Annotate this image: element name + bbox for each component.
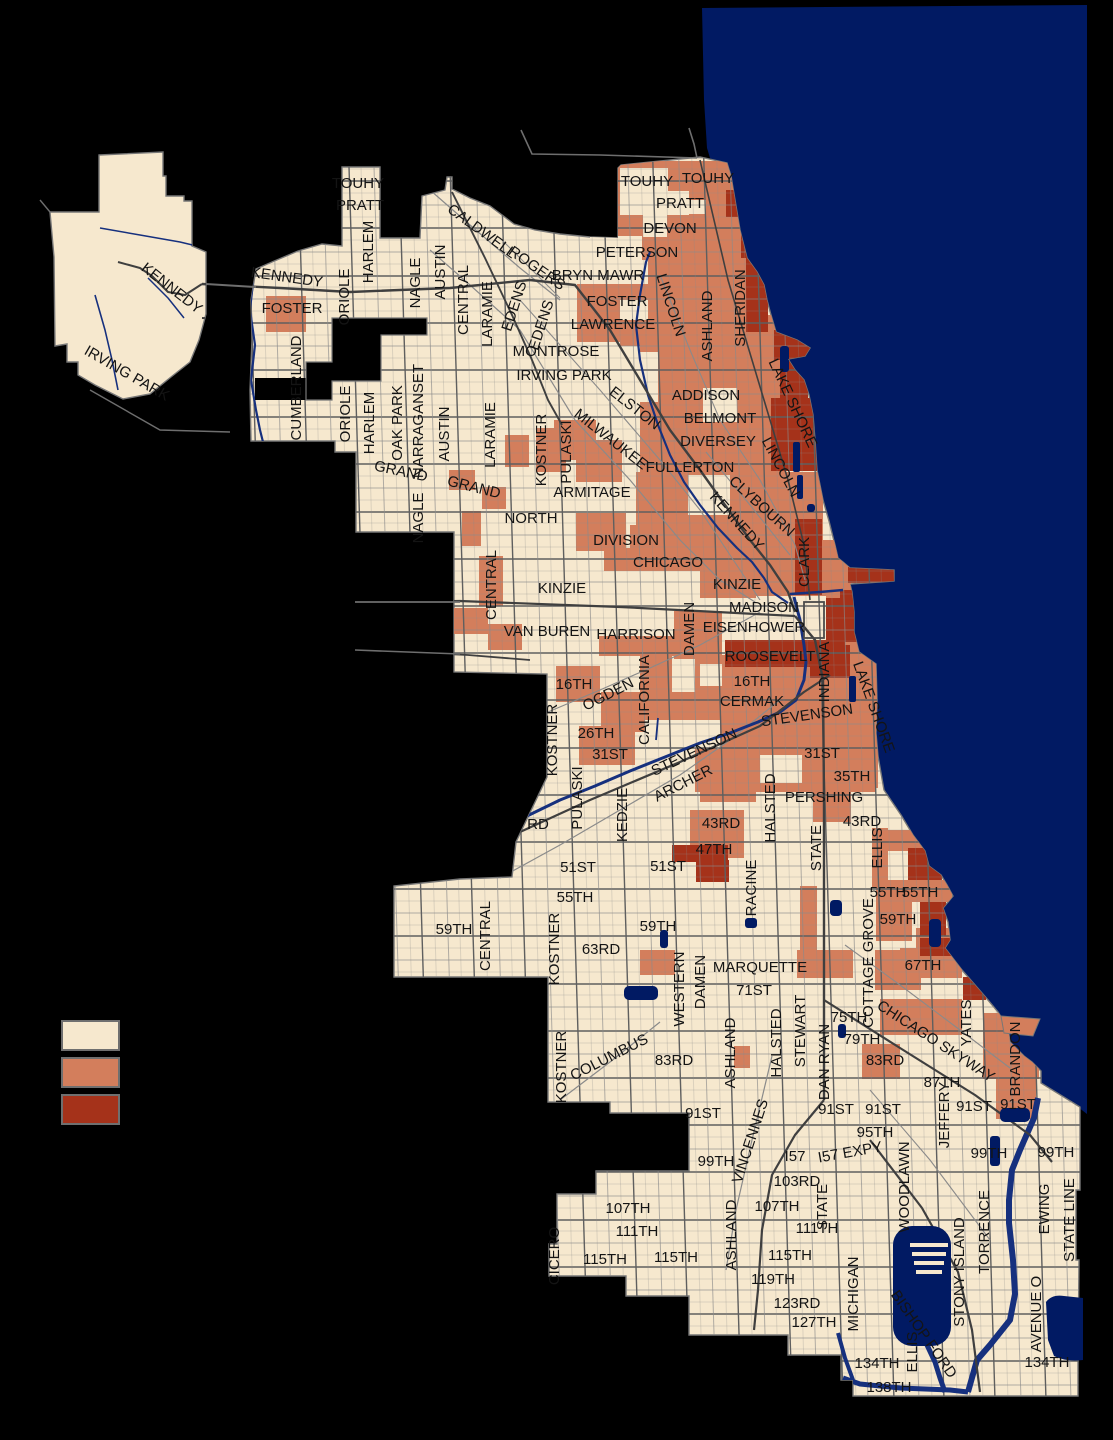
svg-text:134TH: 134TH bbox=[854, 1355, 899, 1372]
svg-text:WOODLAWN: WOODLAWN bbox=[896, 1141, 913, 1232]
svg-text:134TH: 134TH bbox=[1024, 1354, 1069, 1371]
svg-text:CENTRAL: CENTRAL bbox=[455, 265, 472, 335]
svg-text:NAGLE: NAGLE bbox=[410, 493, 427, 544]
svg-text:HARLEM: HARLEM bbox=[360, 221, 377, 284]
svg-text:115TH: 115TH bbox=[768, 1247, 812, 1264]
svg-text:31ST: 31ST bbox=[804, 745, 840, 762]
svg-text:ORIOLE: ORIOLE bbox=[337, 386, 354, 443]
svg-text:STATE LINE: STATE LINE bbox=[1061, 1178, 1078, 1262]
svg-text:59TH: 59TH bbox=[436, 921, 473, 938]
svg-text:ROOSEVELT: ROOSEVELT bbox=[725, 648, 816, 665]
svg-text:DIVERSEY: DIVERSEY bbox=[680, 433, 756, 450]
svg-text:HARLEM: HARLEM bbox=[361, 392, 378, 455]
svg-text:ASHLAND: ASHLAND bbox=[722, 1017, 739, 1088]
svg-text:51ST: 51ST bbox=[650, 858, 686, 875]
svg-text:PULASKI: PULASKI bbox=[558, 420, 575, 483]
svg-text:KOSTNER: KOSTNER bbox=[544, 704, 561, 777]
svg-text:WESTERN: WESTERN bbox=[671, 952, 688, 1027]
svg-text:TOUHY: TOUHY bbox=[332, 175, 384, 192]
svg-text:TOUHY: TOUHY bbox=[682, 170, 734, 187]
svg-text:115TH: 115TH bbox=[583, 1251, 627, 1268]
svg-text:LARAMIE: LARAMIE bbox=[479, 281, 496, 347]
svg-text:KINZIE: KINZIE bbox=[538, 580, 586, 597]
svg-text:111TH: 111TH bbox=[796, 1220, 839, 1237]
svg-text:67TH: 67TH bbox=[905, 957, 942, 974]
svg-text:DEVON: DEVON bbox=[643, 220, 696, 237]
svg-text:ASHLAND: ASHLAND bbox=[723, 1199, 740, 1270]
svg-text:HARRISON: HARRISON bbox=[596, 626, 675, 643]
svg-text:43RD: 43RD bbox=[702, 815, 741, 832]
svg-text:31ST: 31ST bbox=[592, 746, 628, 763]
svg-text:FOSTER: FOSTER bbox=[262, 300, 323, 317]
svg-text:ELLIS: ELLIS bbox=[869, 828, 886, 869]
svg-text:47TH: 47TH bbox=[696, 841, 733, 858]
svg-text:NORTH: NORTH bbox=[504, 510, 557, 527]
svg-text:STATE: STATE bbox=[808, 825, 825, 871]
svg-text:95TH: 95TH bbox=[857, 1124, 894, 1141]
svg-text:KINZIE: KINZIE bbox=[713, 576, 761, 593]
svg-text:AUSTIN: AUSTIN bbox=[432, 244, 449, 299]
svg-text:VAN BUREN: VAN BUREN bbox=[504, 623, 590, 640]
svg-text:16TH: 16TH bbox=[734, 673, 771, 690]
svg-text:DIVISION: DIVISION bbox=[593, 532, 659, 549]
svg-text:43RD: 43RD bbox=[843, 813, 882, 830]
svg-text:107TH: 107TH bbox=[605, 1200, 650, 1217]
svg-text:STEWART: STEWART bbox=[792, 995, 809, 1068]
svg-text:AVENUE O: AVENUE O bbox=[1028, 1276, 1045, 1352]
svg-text:COTTAGE GROVE: COTTAGE GROVE bbox=[860, 898, 877, 1028]
svg-text:127TH: 127TH bbox=[791, 1314, 836, 1331]
svg-text:115TH: 115TH bbox=[654, 1249, 698, 1266]
svg-text:NAGLE: NAGLE bbox=[407, 258, 424, 309]
svg-text:91ST: 91ST bbox=[685, 1105, 721, 1122]
svg-text:DAN RYAN: DAN RYAN bbox=[816, 1024, 833, 1100]
svg-text:MARQUETTE: MARQUETTE bbox=[713, 959, 807, 976]
svg-text:FOSTER: FOSTER bbox=[587, 293, 648, 310]
svg-text:AUSTIN: AUSTIN bbox=[436, 406, 453, 461]
svg-text:DAMEN: DAMEN bbox=[681, 602, 698, 656]
svg-text:MADISON: MADISON bbox=[729, 599, 799, 616]
svg-text:91ST: 91ST bbox=[865, 1101, 901, 1118]
svg-text:111TH: 111TH bbox=[616, 1223, 659, 1240]
svg-text:CERMAK: CERMAK bbox=[720, 693, 784, 710]
svg-text:PRATT: PRATT bbox=[336, 197, 384, 214]
svg-text:ASHLAND: ASHLAND bbox=[699, 290, 716, 361]
svg-text:HALSTED: HALSTED bbox=[768, 1008, 785, 1077]
svg-text:EISENHOWER: EISENHOWER bbox=[703, 619, 806, 636]
svg-text:91ST: 91ST bbox=[1000, 1096, 1036, 1113]
svg-text:99TH: 99TH bbox=[1038, 1144, 1075, 1161]
svg-text:MONTROSE: MONTROSE bbox=[513, 343, 600, 360]
svg-text:BELMONT: BELMONT bbox=[684, 410, 757, 427]
svg-text:KOSTNER: KOSTNER bbox=[553, 1031, 570, 1104]
svg-text:CICERO: CICERO bbox=[546, 1227, 563, 1285]
svg-text:CENTRAL: CENTRAL bbox=[477, 901, 494, 971]
svg-text:ORIOLE: ORIOLE bbox=[336, 269, 353, 326]
svg-text:OAK PARK: OAK PARK bbox=[389, 385, 406, 461]
svg-text:DAMEN: DAMEN bbox=[692, 955, 709, 1009]
svg-text:SHERIDAN: SHERIDAN bbox=[732, 269, 749, 347]
svg-text:ARMITAGE: ARMITAGE bbox=[553, 484, 630, 501]
svg-text:55TH: 55TH bbox=[902, 884, 939, 901]
svg-text:63RD: 63RD bbox=[582, 941, 621, 958]
svg-text:35TH: 35TH bbox=[834, 768, 871, 785]
svg-text:NARRAGANSET: NARRAGANSET bbox=[410, 364, 427, 478]
svg-text:KOSTNER: KOSTNER bbox=[533, 414, 550, 487]
svg-text:99TH: 99TH bbox=[971, 1145, 1008, 1162]
svg-text:STONY ISLAND: STONY ISLAND bbox=[951, 1217, 968, 1327]
svg-text:BRYN MAWR: BRYN MAWR bbox=[552, 267, 645, 284]
svg-text:JEFFERY: JEFFERY bbox=[936, 1082, 953, 1148]
svg-text:PERSHING: PERSHING bbox=[785, 789, 863, 806]
svg-text:55TH: 55TH bbox=[557, 889, 594, 906]
svg-text:ELLIS: ELLIS bbox=[904, 1332, 921, 1373]
svg-text:71ST: 71ST bbox=[736, 982, 772, 999]
svg-text:RACINE: RACINE bbox=[743, 860, 760, 917]
svg-text:HALSTED: HALSTED bbox=[762, 773, 779, 842]
svg-text:TORRENCE: TORRENCE bbox=[976, 1190, 993, 1274]
svg-text:CLARK: CLARK bbox=[796, 537, 813, 587]
svg-text:PULASKI: PULASKI bbox=[569, 766, 586, 829]
svg-text:IRVING PARK: IRVING PARK bbox=[516, 367, 611, 384]
svg-text:79TH: 79TH bbox=[844, 1031, 881, 1048]
svg-text:83RD: 83RD bbox=[655, 1052, 694, 1069]
svg-text:83RD: 83RD bbox=[866, 1052, 905, 1069]
svg-text:59TH: 59TH bbox=[880, 911, 917, 928]
svg-text:16TH: 16TH bbox=[556, 676, 593, 693]
svg-text:51ST: 51ST bbox=[560, 859, 596, 876]
svg-text:ADDISON: ADDISON bbox=[672, 387, 740, 404]
svg-text:99TH: 99TH bbox=[698, 1153, 735, 1170]
svg-text:EWING: EWING bbox=[1036, 1184, 1053, 1235]
svg-text:PETERSON: PETERSON bbox=[596, 244, 679, 261]
svg-text:LAWRENCE: LAWRENCE bbox=[571, 316, 655, 333]
svg-text:119TH: 119TH bbox=[751, 1271, 795, 1288]
svg-text:107TH: 107TH bbox=[754, 1198, 799, 1215]
svg-text:91ST: 91ST bbox=[956, 1098, 992, 1115]
svg-text:CHICAGO: CHICAGO bbox=[633, 554, 703, 571]
svg-text:YATES: YATES bbox=[958, 1000, 975, 1047]
svg-text:138TH: 138TH bbox=[866, 1379, 911, 1396]
svg-text:LARAMIE: LARAMIE bbox=[482, 402, 499, 468]
svg-text:MICHIGAN: MICHIGAN bbox=[845, 1257, 862, 1332]
svg-text:PRATT: PRATT bbox=[656, 195, 704, 212]
svg-text:KOSTNER: KOSTNER bbox=[546, 913, 563, 986]
svg-text:KEDZIE: KEDZIE bbox=[614, 788, 631, 842]
svg-text:123RD: 123RD bbox=[774, 1295, 821, 1312]
svg-text:BRANDON: BRANDON bbox=[1007, 1021, 1024, 1096]
svg-text:I57: I57 bbox=[785, 1148, 806, 1165]
svg-text:INDIANA: INDIANA bbox=[816, 642, 833, 703]
svg-text:CUMBERLAND: CUMBERLAND bbox=[288, 335, 305, 440]
svg-text:59TH: 59TH bbox=[640, 918, 677, 935]
svg-text:TOUHY: TOUHY bbox=[621, 173, 673, 190]
svg-text:91ST: 91ST bbox=[818, 1101, 854, 1118]
svg-text:CENTRAL: CENTRAL bbox=[483, 550, 500, 620]
svg-text:CALIFORNIA: CALIFORNIA bbox=[636, 655, 653, 745]
svg-text:26TH: 26TH bbox=[578, 725, 615, 742]
svg-text:FULLERTON: FULLERTON bbox=[646, 459, 735, 476]
svg-text:RD: RD bbox=[527, 816, 549, 833]
